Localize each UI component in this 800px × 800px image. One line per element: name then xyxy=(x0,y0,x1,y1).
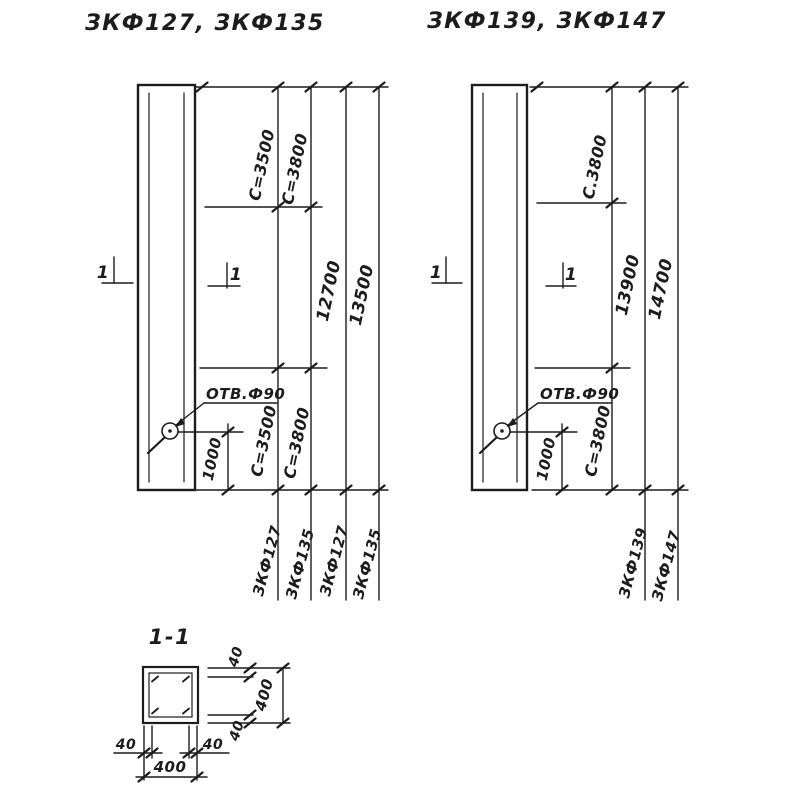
right-pile-drawing: ЗКФ139, ЗКФ147 1 1 xyxy=(426,9,688,603)
pile-mark-label: ЗКФ147 xyxy=(648,528,684,602)
dim-label-length-a: 13900 xyxy=(612,253,644,317)
dim-label-c-bottom-a: C=3500 xyxy=(247,403,281,478)
dim-label-cover-right: 40 xyxy=(202,737,223,753)
section-cut-number: 1 xyxy=(97,263,109,283)
section-1-1-view: 1-1 xyxy=(114,625,290,782)
dim-label-c-bottom: C=3800 xyxy=(581,403,615,478)
dim-label-height: 400 xyxy=(251,677,277,714)
leader-tail-line xyxy=(148,438,164,453)
technical-drawing: ЗКФ127, ЗКФ135 1 1 xyxy=(0,0,800,800)
pile-mark-label: ЗКФ127 xyxy=(249,523,285,597)
dim-label-length-b: 14700 xyxy=(645,257,677,321)
hole-center-dot xyxy=(500,429,504,433)
section-title: 1-1 xyxy=(149,625,191,649)
right-drawing-title: ЗКФ139, ЗКФ147 xyxy=(426,9,667,34)
left-section-cut-marker: 1 1 xyxy=(97,257,242,288)
dim-label-c-top-b: C=3800 xyxy=(278,131,312,206)
section-cut-number: 1 xyxy=(565,265,577,285)
dim-label-hole-offset: 1000 xyxy=(533,436,560,483)
pile-mark-label: ЗКФ139 xyxy=(615,526,651,600)
dim-label-width: 400 xyxy=(153,758,187,776)
left-pile-drawing: ЗКФ127, ЗКФ135 1 1 xyxy=(84,11,388,601)
dim-label-length-a: 12700 xyxy=(313,259,345,323)
left-drawing-title: ЗКФ127, ЗКФ135 xyxy=(84,11,325,36)
drawing-sheet: ЗКФ127, ЗКФ135 1 1 xyxy=(0,0,800,800)
dim-label-c-top-a: C=3500 xyxy=(245,127,279,202)
hole-callout-label: ОТВ.Ф90 xyxy=(206,385,285,403)
dim-label-cover-left: 40 xyxy=(115,737,136,753)
hole-callout-label: ОТВ.Ф90 xyxy=(540,385,619,403)
section-cut-number: 1 xyxy=(430,263,442,283)
pile-mark-label: ЗКФ135 xyxy=(349,527,385,601)
dim-label-length-b: 13500 xyxy=(346,263,378,327)
rebar-corner-marks xyxy=(152,677,189,714)
dim-label-hole-offset: 1000 xyxy=(199,436,226,483)
pile-mark-label: ЗКФ127 xyxy=(316,523,352,597)
section-cut-number: 1 xyxy=(230,265,242,285)
pile-mark-label: ЗКФ135 xyxy=(282,527,318,601)
dim-label-c-bottom-b: C=3800 xyxy=(280,405,314,480)
dim-label-cover-top: 40 xyxy=(225,645,247,670)
right-section-cut-marker: 1 1 xyxy=(430,257,577,288)
dim-label-c-top: C.3800 xyxy=(579,133,611,201)
hole-center-dot xyxy=(168,429,172,433)
section-outer-square xyxy=(143,667,198,723)
